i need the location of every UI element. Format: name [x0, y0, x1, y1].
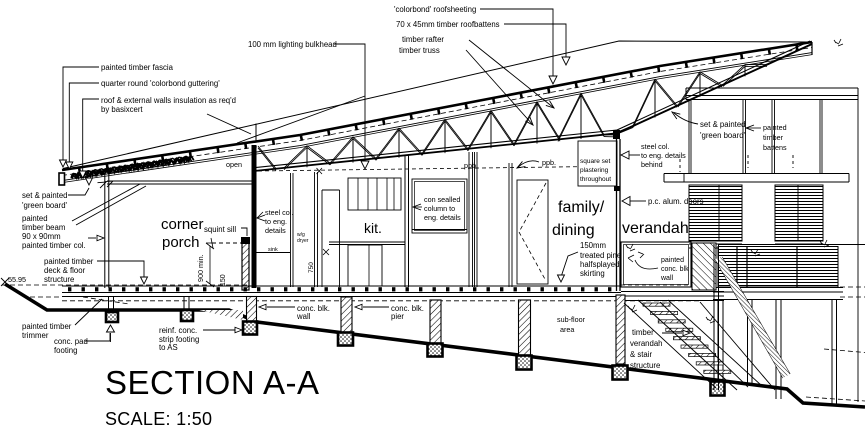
svg-text:halfsplayed: halfsplayed — [580, 260, 619, 269]
svg-text:150: 150 — [220, 274, 227, 286]
svg-text:structure: structure — [630, 361, 660, 370]
svg-text:roof & external walls insulati: roof & external walls insulation as req'… — [101, 96, 236, 105]
svg-text:55.95: 55.95 — [8, 275, 26, 284]
svg-text:ppb.: ppb. — [542, 158, 556, 167]
svg-text:timber rafter: timber rafter — [402, 35, 444, 44]
svg-text:ppb.: ppb. — [464, 161, 478, 170]
svg-text:details: details — [265, 226, 286, 235]
svg-text:eng. details: eng. details — [424, 213, 461, 222]
svg-text:150mm: 150mm — [580, 241, 606, 250]
svg-text:sink: sink — [268, 247, 278, 253]
svg-text:open: open — [226, 160, 242, 169]
svg-text:verandah: verandah — [630, 339, 663, 348]
svg-text:quarter round 'colorbond gutte: quarter round 'colorbond guttering' — [101, 79, 220, 88]
svg-text:'green board': 'green board' — [22, 201, 68, 210]
svg-text:900 min.: 900 min. — [196, 254, 205, 282]
svg-text:'green board': 'green board' — [700, 131, 746, 140]
svg-text:pier: pier — [391, 312, 404, 321]
svg-text:timber: timber — [632, 328, 654, 337]
svg-text:painted: painted — [661, 257, 684, 264]
svg-text:reinf. conc.: reinf. conc. — [159, 326, 197, 335]
svg-text:structure: structure — [44, 275, 74, 284]
svg-text:to AS: to AS — [159, 343, 178, 352]
svg-text:throughout: throughout — [580, 176, 611, 183]
svg-text:70 x 45mm timber roofbattens: 70 x 45mm timber roofbattens — [396, 20, 500, 29]
svg-text:steel col.: steel col. — [641, 142, 669, 151]
svg-text:painted timber: painted timber — [44, 257, 94, 266]
svg-text:wall: wall — [296, 312, 311, 321]
svg-text:family/: family/ — [558, 199, 605, 216]
svg-text:set & painted: set & painted — [700, 120, 746, 129]
svg-text:con sealled: con sealled — [424, 195, 460, 204]
svg-text:battens: battens — [763, 143, 787, 152]
svg-text:plastering: plastering — [580, 167, 609, 174]
svg-text:SCALE: 1:50: SCALE: 1:50 — [105, 409, 212, 429]
svg-text:square set: square set — [580, 158, 611, 165]
svg-text:'colorbond' roofsheeting: 'colorbond' roofsheeting — [394, 5, 476, 14]
svg-text:& stair: & stair — [630, 350, 652, 359]
svg-text:to eng. details: to eng. details — [641, 151, 686, 160]
svg-text:to eng.: to eng. — [265, 217, 287, 226]
svg-text:750: 750 — [308, 262, 315, 273]
svg-text:timber beam: timber beam — [22, 223, 65, 232]
svg-text:90 x 90mm: 90 x 90mm — [22, 232, 61, 241]
svg-text:100 mm lighting bulkhead: 100 mm lighting bulkhead — [248, 40, 337, 49]
svg-text:dining: dining — [552, 222, 595, 239]
svg-text:sub-floor: sub-floor — [557, 315, 586, 324]
svg-text:skirting: skirting — [580, 269, 605, 278]
svg-text:dryer: dryer — [297, 238, 309, 244]
svg-text:by basixcert: by basixcert — [101, 105, 143, 114]
svg-text:timber: timber — [763, 133, 784, 142]
svg-text:painted timber fascia: painted timber fascia — [101, 63, 174, 72]
svg-text:deck & floor: deck & floor — [44, 266, 86, 275]
svg-text:SECTION A-A: SECTION A-A — [105, 364, 320, 401]
svg-text:porch: porch — [162, 234, 200, 251]
svg-text:set & painted: set & painted — [22, 191, 68, 200]
svg-text:wall: wall — [660, 275, 674, 282]
svg-text:steel col.: steel col. — [265, 208, 293, 217]
svg-text:treated pine: treated pine — [580, 251, 621, 260]
svg-text:conc. blk: conc. blk — [661, 266, 689, 273]
svg-text:verandah: verandah — [622, 220, 689, 237]
svg-text:painted: painted — [763, 123, 787, 132]
svg-text:column to: column to — [424, 204, 455, 213]
svg-text:trimmer: trimmer — [22, 331, 49, 340]
svg-text:behind: behind — [641, 160, 663, 169]
svg-text:conc. pad: conc. pad — [54, 337, 88, 346]
svg-text:p.c. alum. doors: p.c. alum. doors — [648, 197, 704, 206]
svg-text:corner: corner — [161, 216, 204, 233]
svg-text:squint sill: squint sill — [204, 225, 236, 234]
svg-text:area: area — [560, 325, 574, 334]
svg-text:painted timber: painted timber — [22, 322, 72, 331]
svg-text:kit.: kit. — [364, 220, 382, 236]
svg-text:painted timber col.: painted timber col. — [22, 241, 86, 250]
svg-text:timber truss: timber truss — [399, 46, 440, 55]
svg-text:footing: footing — [54, 346, 77, 355]
svg-text:painted: painted — [22, 214, 48, 223]
